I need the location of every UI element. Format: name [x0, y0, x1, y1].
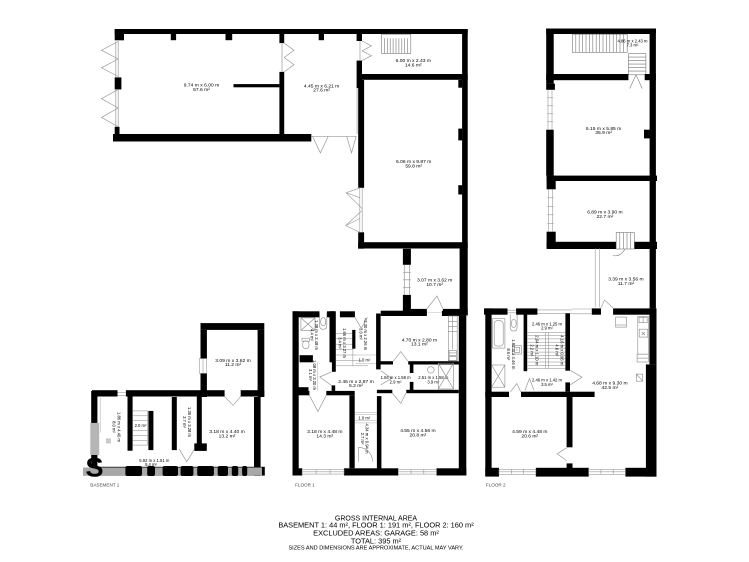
svg-text:3.9 m²: 3.9 m²: [427, 380, 439, 385]
svg-text:3.4 m²: 3.4 m²: [338, 337, 343, 349]
svg-text:59.8 m²: 59.8 m²: [405, 163, 422, 169]
svg-text:4.4 m²: 4.4 m²: [310, 329, 315, 341]
svg-text:3.1 m²: 3.1 m²: [308, 369, 313, 381]
svg-text:2.9 m²: 2.9 m²: [541, 326, 553, 331]
svg-text:FLOOR 1: FLOOR 1: [295, 483, 315, 488]
svg-text:11.2 m²: 11.2 m²: [225, 362, 242, 368]
svg-text:11.7 m²: 11.7 m²: [618, 281, 635, 287]
svg-text:35.9 m²: 35.9 m²: [595, 130, 612, 136]
svg-text:27.6 m²: 27.6 m²: [313, 88, 330, 94]
svg-text:2.9 m²: 2.9 m²: [390, 380, 402, 385]
svg-text:8.6 m²: 8.6 m²: [506, 348, 511, 360]
svg-text:7.3 m²: 7.3 m²: [627, 43, 639, 48]
svg-text:57.6 m²: 57.6 m²: [193, 87, 210, 93]
svg-text:SIZES AND DIMENSIONS ARE APPRO: SIZES AND DIMENSIONS ARE APPROXIMATE, AC…: [288, 546, 464, 552]
svg-text:3.7 m²: 3.7 m²: [182, 416, 187, 428]
svg-text:TOTAL: 395 m²: TOTAL: 395 m²: [351, 537, 402, 546]
svg-text:5.2 m²: 5.2 m²: [349, 383, 363, 389]
svg-text:2.7 m²: 2.7 m²: [360, 433, 365, 445]
svg-text:BASEMENT 1: BASEMENT 1: [90, 483, 119, 488]
svg-text:2.0 m²: 2.0 m²: [135, 423, 147, 428]
svg-text:10.7 m²: 10.7 m²: [426, 282, 443, 288]
svg-text:8.0 m²: 8.0 m²: [112, 421, 117, 433]
svg-text:20.6 m²: 20.6 m²: [521, 433, 538, 439]
svg-text:22.7 m²: 22.7 m²: [597, 214, 614, 220]
svg-text:20.8 m²: 20.8 m²: [410, 432, 427, 438]
svg-text:FLOOR 2: FLOOR 2: [486, 483, 506, 488]
svg-text:S: S: [86, 453, 104, 483]
svg-text:2.2 m²: 2.2 m²: [530, 344, 535, 356]
svg-text:4.0 m²: 4.0 m²: [555, 344, 560, 356]
svg-text:42.5 m²: 42.5 m²: [602, 385, 619, 391]
svg-text:14.3 m²: 14.3 m²: [316, 433, 333, 439]
svg-text:3.0 m²: 3.0 m²: [359, 328, 364, 340]
svg-text:3.5 m²: 3.5 m²: [541, 382, 553, 387]
svg-text:14.6 m²: 14.6 m²: [405, 62, 422, 68]
svg-text:13.2 m²: 13.2 m²: [219, 434, 236, 440]
svg-text:1.0 m²: 1.0 m²: [359, 358, 371, 363]
svg-text:13.1 m²: 13.1 m²: [411, 342, 428, 348]
svg-text:1.0 m²: 1.0 m²: [358, 415, 370, 420]
